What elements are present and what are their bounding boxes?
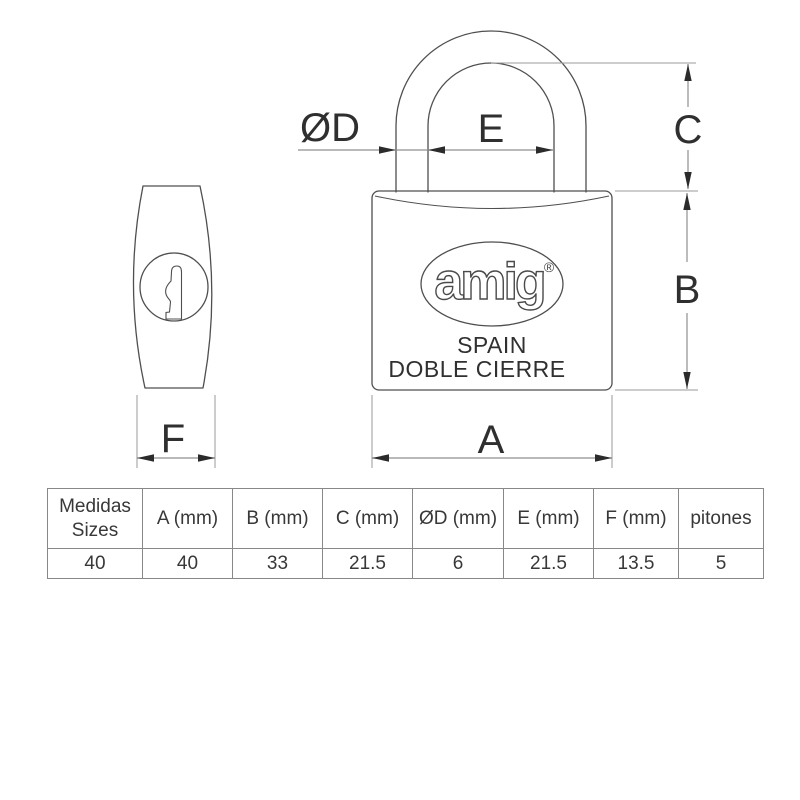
arrowhead-left-icon	[428, 146, 445, 153]
padlock-technical-drawing: amig ® SPAIN DOBLE CIERRE ØD E C B	[0, 0, 800, 485]
country-text: SPAIN	[457, 332, 527, 358]
arrowhead-down-icon	[684, 172, 691, 189]
arrowhead-right-icon	[379, 146, 396, 153]
dimension-b: B	[615, 193, 700, 390]
dim-label-a: A	[478, 418, 505, 462]
value-cell-d: 6	[413, 549, 504, 579]
spec-table-header-row: Medidas Sizes A (mm) B (mm) C (mm) ØD (m…	[48, 489, 764, 549]
body-top-chamfer	[375, 196, 609, 209]
header-cell-c: C (mm)	[323, 489, 413, 549]
arrowhead-down-icon	[683, 372, 690, 389]
padlock-side-view	[133, 186, 211, 388]
padlock-front-view: amig ® SPAIN DOBLE CIERRE	[372, 31, 612, 390]
arrowhead-right-icon	[536, 146, 553, 153]
dimension-shackle: ØD E	[298, 106, 553, 154]
arrowhead-left-icon	[137, 454, 154, 461]
dim-label-e: E	[478, 107, 505, 151]
dim-label-d: ØD	[300, 106, 360, 150]
header-cell-pitones: pitones	[679, 489, 764, 549]
header-cell-b: B (mm)	[233, 489, 323, 549]
keyhole-circle	[140, 253, 208, 321]
arrowhead-right-icon	[595, 454, 612, 461]
side-body-outline	[133, 186, 211, 388]
header-cell-medidas: Medidas Sizes	[48, 489, 143, 549]
dimension-f: F	[137, 395, 215, 468]
value-cell-e: 21.5	[504, 549, 594, 579]
header-cell-a: A (mm)	[143, 489, 233, 549]
registered-trademark-icon: ®	[544, 259, 555, 275]
value-cell-f: 13.5	[594, 549, 679, 579]
dim-label-f: F	[161, 417, 185, 461]
brand-logo: amig	[434, 253, 544, 311]
arrowhead-up-icon	[684, 64, 691, 81]
header-medidas-line2: Sizes	[48, 519, 142, 542]
spec-table: Medidas Sizes A (mm) B (mm) C (mm) ØD (m…	[47, 488, 764, 579]
dim-label-c: C	[674, 108, 703, 152]
arrowhead-right-icon	[198, 454, 215, 461]
value-cell-c: 21.5	[323, 549, 413, 579]
feature-text: DOBLE CIERRE	[388, 356, 565, 382]
dimension-c: C	[491, 63, 702, 191]
header-cell-f: F (mm)	[594, 489, 679, 549]
dimension-a: A	[372, 395, 612, 468]
header-medidas-line1: Medidas	[48, 495, 142, 518]
dim-label-b: B	[674, 268, 701, 312]
header-cell-e: E (mm)	[504, 489, 594, 549]
value-cell-a: 40	[143, 549, 233, 579]
arrowhead-up-icon	[683, 193, 690, 210]
spec-table-value-row: 40 40 33 21.5 6 21.5 13.5 5	[48, 549, 764, 579]
value-cell-pitones: 5	[679, 549, 764, 579]
page: { "drawing": { "dimension_labels": { "d"…	[0, 0, 800, 800]
keyhole-icon	[166, 266, 182, 319]
value-cell-medidas: 40	[48, 549, 143, 579]
arrowhead-left-icon	[372, 454, 389, 461]
value-cell-b: 33	[233, 549, 323, 579]
header-cell-d: ØD (mm)	[413, 489, 504, 549]
